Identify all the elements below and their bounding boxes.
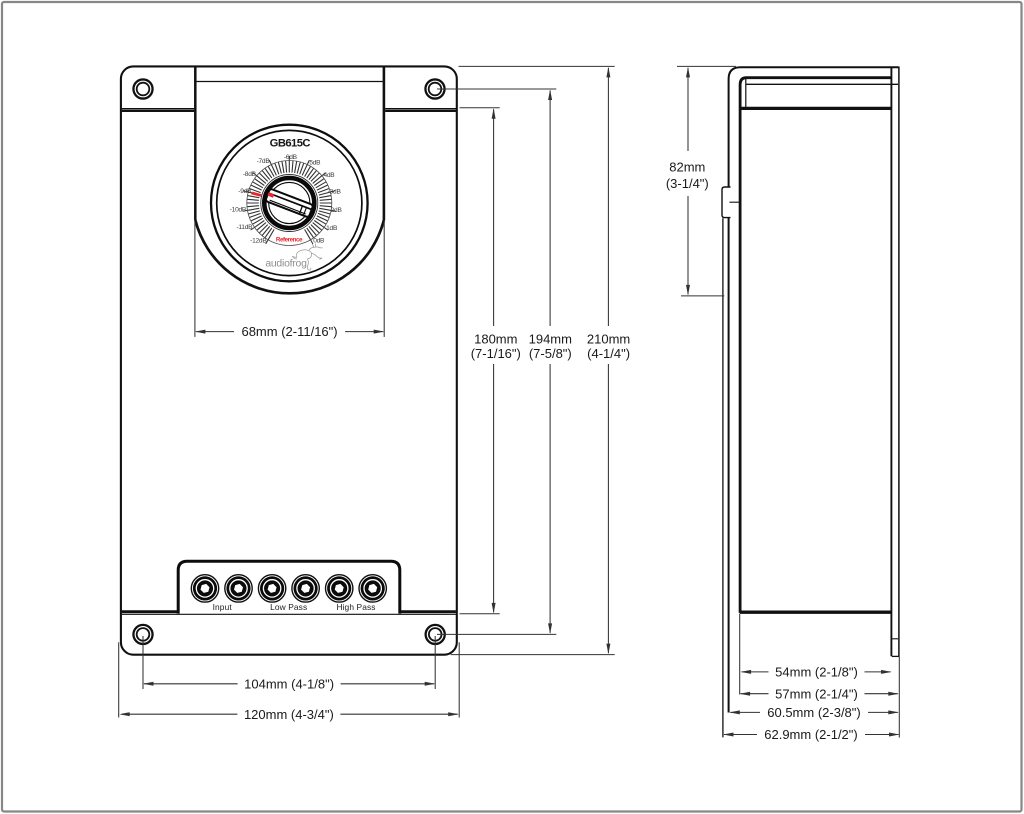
svg-text:104mm (4-1/8"): 104mm (4-1/8") [244,676,334,691]
svg-text:Input: Input [213,602,233,612]
svg-text:-1dB: -1dB [324,225,338,232]
svg-text:68mm (2-11/16"): 68mm (2-11/16") [241,324,337,339]
svg-text:60.5mm (2-3/8"): 60.5mm (2-3/8") [767,705,860,720]
svg-text:-3dB: -3dB [328,189,342,196]
svg-text:-11dB: -11dB [236,224,253,231]
svg-text:120mm (4-3/4"): 120mm (4-3/4") [244,707,334,722]
svg-text:180mm: 180mm [474,331,517,346]
svg-text:54mm (2-1/8"): 54mm (2-1/8") [775,665,858,680]
svg-text:-7dB: -7dB [257,158,271,165]
svg-text:-2dB: -2dB [329,207,343,214]
svg-text:(3-1/4"): (3-1/4") [666,176,709,191]
svg-text:194mm: 194mm [529,331,572,346]
svg-text:-8dB: -8dB [243,171,257,178]
svg-text:High Pass: High Pass [336,602,375,612]
svg-text:210mm: 210mm [587,331,630,346]
svg-text:57mm (2-1/4"): 57mm (2-1/4") [775,686,858,701]
svg-text:-9dB: -9dB [238,188,252,195]
svg-text:(7-1/16"): (7-1/16") [471,346,521,361]
svg-text:-10dB: -10dB [230,207,247,214]
svg-text:-12dB: -12dB [250,237,267,244]
svg-text:0dB: 0dB [313,237,325,244]
svg-text:audiofrog: audiofrog [265,259,307,270]
svg-text:62.9mm (2-1/2"): 62.9mm (2-1/2") [764,727,857,742]
svg-text:Low Pass: Low Pass [270,602,307,612]
svg-text:(7-5/8"): (7-5/8") [529,346,572,361]
svg-text:Reference: Reference [276,236,303,243]
svg-text:GB615C: GB615C [270,138,311,150]
svg-text:(4-1/4"): (4-1/4") [587,346,630,361]
svg-text:82mm: 82mm [669,159,705,174]
svg-text:-4dB: -4dB [322,172,336,179]
svg-text:-5dB: -5dB [307,159,321,166]
svg-text:-6dB: -6dB [284,154,298,161]
